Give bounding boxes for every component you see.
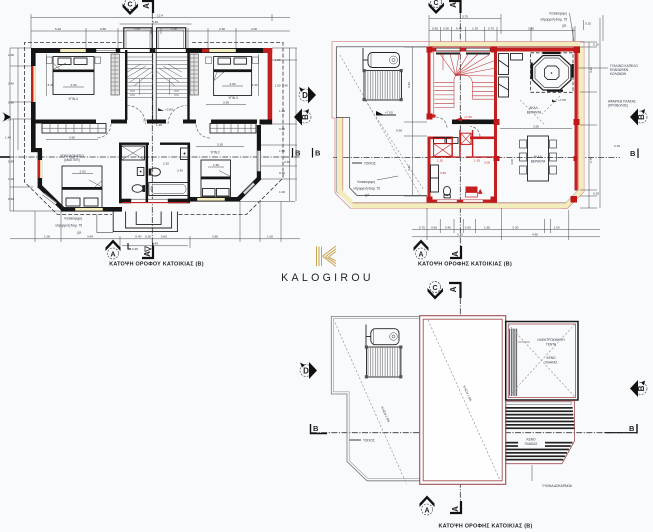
svg-text:B: B — [629, 424, 635, 433]
svg-text:A: A — [142, 3, 151, 9]
svg-text:ΑΚΑΛ.: ΑΚΑΛ. — [533, 155, 543, 159]
svg-text:3.40: 3.40 — [589, 67, 593, 73]
svg-text:ΤΕΝΤΑ: ΤΕΝΤΑ — [546, 343, 557, 347]
svg-text:12.4: 12.4 — [157, 13, 163, 17]
svg-text:0.30: 0.30 — [145, 234, 151, 238]
svg-text:B: B — [315, 149, 321, 158]
svg-text:0.40: 0.40 — [135, 234, 141, 238]
svg-text:2.20: 2.20 — [163, 162, 169, 166]
svg-text:1.20: 1.20 — [279, 109, 285, 113]
svg-text:3.55: 3.55 — [533, 124, 539, 128]
svg-text:C: C — [433, 0, 438, 7]
svg-text:3.80: 3.80 — [212, 235, 218, 239]
svg-text:B: B — [637, 385, 646, 391]
svg-text:2.00: 2.00 — [251, 27, 257, 31]
svg-text:υδρορροή διαμ. 75: υδρορροή διαμ. 75 — [540, 18, 567, 22]
svg-text:3.95: 3.95 — [223, 101, 229, 105]
svg-text:χιλ.: χιλ. — [562, 24, 567, 28]
svg-text:1.20: 1.20 — [274, 58, 280, 62]
svg-text:3.40: 3.40 — [282, 84, 288, 88]
svg-text:3.20: 3.20 — [407, 165, 411, 171]
svg-text:0.25: 0.25 — [593, 192, 599, 196]
svg-text:2.45: 2.45 — [177, 169, 183, 173]
svg-text:3.40: 3.40 — [48, 83, 54, 87]
svg-text:Κατακόρυμη: Κατακόρυμη — [358, 180, 376, 184]
svg-text:0.40: 0.40 — [445, 225, 451, 229]
svg-text:B: B — [313, 424, 319, 433]
svg-text:ΚΕΝΟ: ΚΕΝΟ — [546, 356, 556, 360]
svg-text:A: A — [418, 251, 423, 258]
svg-text:2.30: 2.30 — [143, 119, 149, 123]
svg-text:1.10: 1.10 — [8, 177, 14, 181]
svg-text:1.00: 1.00 — [8, 53, 14, 57]
svg-text:0.60: 0.60 — [432, 26, 438, 30]
svg-text:3.75: 3.75 — [457, 233, 463, 237]
svg-text:ΥΠΝ.4: ΥΠΝ.4 — [68, 97, 78, 101]
svg-text:0.75: 0.75 — [488, 26, 494, 30]
svg-text:D: D — [302, 91, 308, 100]
svg-text:ΚΕΝΟ: ΚΕΝΟ — [526, 438, 536, 442]
svg-text:ΚΑΤΟΨΗ ΟΡΟΦΟΥ ΚΑΤΟΙΚΙΑΣ (Β): ΚΑΤΟΨΗ ΟΡΟΦΟΥ ΚΑΤΟΙΚΙΑΣ (Β) — [109, 261, 204, 267]
svg-text:2.75: 2.75 — [589, 157, 593, 163]
svg-text:ΥΠΝ.2: ΥΠΝ.2 — [210, 151, 220, 155]
svg-text:ΞΥΛΙΝΑ ΔΟΚΑΡΑΚΙΑ: ΞΥΛΙΝΑ ΔΟΚΑΡΑΚΙΑ — [542, 484, 573, 488]
svg-text:A: A — [449, 286, 458, 292]
svg-text:0.90: 0.90 — [8, 101, 14, 105]
svg-text:0.90: 0.90 — [396, 129, 402, 133]
svg-text:1.35: 1.35 — [437, 158, 443, 162]
svg-text:+3.85: +3.85 — [165, 108, 173, 112]
svg-text:3.40: 3.40 — [407, 82, 411, 88]
svg-text:3.30: 3.30 — [217, 142, 223, 146]
svg-text:0.40: 0.40 — [456, 26, 462, 30]
svg-text:ΠΛΑΚΑΣ: ΠΛΑΚΑΣ — [545, 361, 558, 365]
svg-text:B: B — [295, 149, 301, 158]
svg-text:0.60: 0.60 — [161, 234, 167, 238]
svg-text:ΗΛΕΚΤΡΟΚΙΝΗΤΗ: ΗΛΕΚΤΡΟΚΙΝΗΤΗ — [537, 338, 565, 342]
svg-text:3.75: 3.75 — [462, 14, 468, 18]
svg-text:(MASTER): (MASTER) — [64, 158, 79, 162]
svg-text:1.50: 1.50 — [274, 84, 280, 88]
svg-text:B: B — [637, 114, 646, 120]
svg-text:1.85: 1.85 — [484, 225, 490, 229]
svg-text:1.00: 1.00 — [279, 190, 285, 194]
svg-text:3.80: 3.80 — [528, 26, 534, 30]
svg-text:4.30: 4.30 — [284, 160, 290, 164]
svg-text:0.25: 0.25 — [585, 22, 591, 26]
svg-text:0.25: 0.25 — [593, 43, 599, 47]
svg-text:A: A — [449, 2, 458, 8]
svg-text:ΚΑΤΟΨΗ ΟΡΟΦΗΣ ΚΑΤΟΙΚΙΑΣ (Β): ΚΑΤΟΨΗ ΟΡΟΦΗΣ ΚΑΤΟΙΚΙΑΣ (Β) — [439, 523, 533, 529]
svg-text:ΚΟΛΩΝΩΝ: ΚΟΛΩΝΩΝ — [610, 72, 627, 76]
svg-text:0.95: 0.95 — [8, 160, 14, 164]
svg-text:ΒΕΡΑΝΤΑ: ΒΕΡΑΝΤΑ — [527, 111, 542, 115]
svg-text:5.40: 5.40 — [55, 27, 61, 31]
svg-text:ΒΕΡΑΝΤΑ: ΒΕΡΑΝΤΑ — [531, 160, 546, 164]
svg-text:0.90: 0.90 — [443, 26, 449, 30]
svg-text:4.00: 4.00 — [510, 159, 514, 165]
svg-text:+7.05: +7.05 — [558, 98, 566, 102]
svg-text:D: D — [303, 367, 309, 376]
svg-text:1.40: 1.40 — [5, 136, 11, 140]
svg-text:1.00: 1.00 — [44, 235, 50, 239]
svg-text:A: A — [143, 251, 152, 257]
svg-text:C: C — [127, 2, 132, 9]
svg-text:ΑΚΑΛ.: ΑΚΑΛ. — [529, 106, 539, 110]
svg-text:0.75: 0.75 — [419, 225, 425, 229]
svg-text:2.90: 2.90 — [219, 27, 225, 31]
svg-text:2.30: 2.30 — [512, 225, 518, 229]
svg-text:2.00: 2.00 — [79, 169, 85, 173]
svg-text:0.90: 0.90 — [465, 225, 471, 229]
svg-text:1.20: 1.20 — [156, 123, 162, 127]
svg-text:3.40: 3.40 — [87, 235, 93, 239]
svg-text:ΤΟΙΧΟΣ: ΤΟΙΧΟΣ — [364, 162, 376, 166]
svg-text:3.05: 3.05 — [484, 161, 490, 165]
svg-text:+7.05: +7.05 — [385, 111, 393, 115]
svg-text:A: A — [424, 507, 429, 514]
svg-text:ΥΠΝ.3: ΥΠΝ.3 — [228, 96, 238, 100]
svg-text:1.20: 1.20 — [472, 26, 478, 30]
svg-text:0.90: 0.90 — [279, 171, 285, 175]
svg-text:C: C — [432, 285, 437, 292]
svg-text:1.50: 1.50 — [213, 163, 219, 167]
svg-text:+7.05: +7.05 — [464, 115, 472, 119]
svg-text:2.16: 2.16 — [614, 144, 620, 148]
svg-text:0.80: 0.80 — [100, 27, 106, 31]
svg-text:0.60: 0.60 — [431, 225, 437, 229]
svg-text:1.55: 1.55 — [279, 149, 285, 153]
svg-text:A: A — [451, 251, 460, 257]
svg-text:B: B — [301, 114, 310, 120]
svg-text:3.60: 3.60 — [69, 135, 75, 139]
svg-text:3.40: 3.40 — [152, 20, 158, 24]
svg-text:3.40: 3.40 — [251, 83, 257, 87]
svg-text:0.90: 0.90 — [8, 197, 14, 201]
svg-text:3.65: 3.65 — [440, 171, 446, 175]
svg-text:3.40: 3.40 — [8, 82, 14, 86]
svg-text:B: B — [630, 149, 636, 158]
svg-text:2.00: 2.00 — [229, 82, 235, 86]
svg-text:ΠΛΑΚΑΣ: ΠΛΑΚΑΣ — [525, 442, 538, 446]
svg-text:A: A — [451, 506, 460, 512]
svg-text:0.45: 0.45 — [132, 247, 138, 251]
svg-text:4.65: 4.65 — [532, 233, 538, 237]
svg-text:υδρορροή διαμ. 75: υδρορροή διαμ. 75 — [55, 224, 82, 228]
svg-text:χιλ.: χιλ. — [77, 231, 82, 235]
svg-text:ΤΟΙΧΟΣ: ΤΟΙΧΟΣ — [363, 439, 375, 443]
svg-text:KALOGIROU: KALOGIROU — [281, 272, 374, 284]
svg-text:υδρορροή διαμ. 75: υδρορροή διαμ. 75 — [353, 187, 380, 191]
svg-text:A: A — [110, 251, 115, 258]
svg-text:(ΠΡΟΒΟΛΟΣ): (ΠΡΟΒΟΛΟΣ) — [608, 104, 628, 108]
svg-text:0.90: 0.90 — [279, 127, 285, 131]
svg-text:χιλ.: χιλ. — [365, 193, 370, 197]
svg-text:1.00: 1.00 — [554, 225, 560, 229]
svg-text:1.35: 1.35 — [474, 158, 480, 162]
svg-text:Κατακόρυμη: Κατακόρυμη — [550, 12, 568, 16]
svg-text:2.00: 2.00 — [70, 83, 76, 87]
svg-text:Κατακόρυμη: Κατακόρυμη — [65, 217, 83, 221]
svg-text:ΚΑΤΟΨΗ ΟΡΟΦΗΣ ΚΑΤΟΙΚΙΑΣ (Β): ΚΑΤΟΨΗ ΟΡΟΦΗΣ ΚΑΤΟΙΚΙΑΣ (Β) — [418, 261, 512, 267]
svg-text:1.00: 1.00 — [267, 235, 273, 239]
